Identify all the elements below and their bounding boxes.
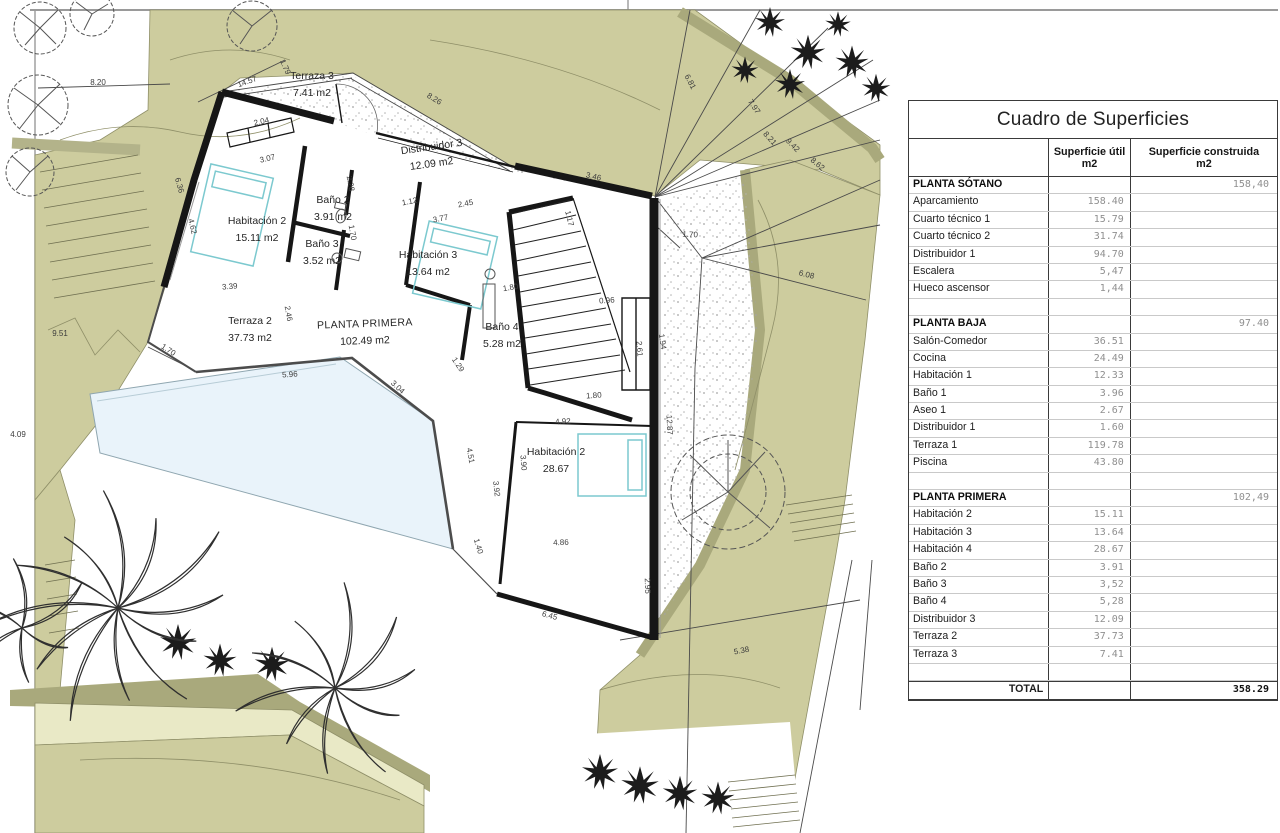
staircase <box>511 200 625 385</box>
table-cell: 3.91 <box>1048 560 1130 576</box>
dimension-label: 2.45 <box>457 198 475 210</box>
room-area-label: 7.41 m2 <box>293 87 331 99</box>
palm-frond <box>118 595 223 614</box>
table-row: Hueco ascensor1,44 <box>909 281 1277 298</box>
table-row: Baño 33,52 <box>909 577 1277 594</box>
table-row: Cocina24.49 <box>909 351 1277 368</box>
table-cell <box>1130 386 1277 402</box>
dimension-label: 1.40 <box>472 538 485 556</box>
table-cell: Terraza 1 <box>909 438 1048 454</box>
table-cell <box>1048 682 1130 698</box>
room-name-label: Terraza 2 <box>228 315 272 327</box>
room-name-label: Baño 2 <box>316 194 349 206</box>
table-row: Habitación 112.33 <box>909 368 1277 385</box>
room-area-label: 15.11 m2 <box>236 232 279 244</box>
table-cell: 5,47 <box>1048 264 1130 280</box>
palm-frond <box>335 617 397 688</box>
palm-frond <box>0 628 22 664</box>
table-cell: Aparcamiento <box>909 194 1048 210</box>
table-cell: Habitación 4 <box>909 542 1048 558</box>
table-cell: 2.67 <box>1048 403 1130 419</box>
room-area-label: 13.64 m2 <box>406 266 450 278</box>
room-name-label: PLANTA PRIMERA <box>317 316 413 331</box>
table-cell <box>909 473 1048 489</box>
dimension-label: 2.46 <box>283 305 295 322</box>
table-row: Aseo 12.67 <box>909 403 1277 420</box>
table-cell <box>1130 334 1277 350</box>
table-cell <box>1048 664 1130 680</box>
table-row: Terraza 237.73 <box>909 629 1277 646</box>
table-cell: Habitación 3 <box>909 525 1048 541</box>
table-cell <box>1130 542 1277 558</box>
table-cell: 158,40 <box>1130 177 1277 193</box>
table-cell: Baño 1 <box>909 386 1048 402</box>
table-cell <box>1048 490 1130 506</box>
room-name-label: Baño 3 <box>305 238 338 250</box>
table-cell <box>1130 438 1277 454</box>
table-cell <box>1130 229 1277 245</box>
table-cell <box>1130 629 1277 645</box>
table-cell <box>1130 594 1277 610</box>
table-cell: 13.64 <box>1048 525 1130 541</box>
table-cell: 1.60 <box>1048 420 1130 436</box>
table-cell: 5,28 <box>1048 594 1130 610</box>
room-area-label: 37.73 m2 <box>228 332 272 344</box>
table-cell: 94.70 <box>1048 247 1130 263</box>
palm-frond <box>118 532 219 608</box>
room-name-label: Habitación 2 <box>228 215 287 227</box>
room-name-label: Terraza 3 <box>290 70 334 82</box>
surface-table-body: PLANTA SÓTANO158,40Aparcamiento158.40Cua… <box>909 177 1277 700</box>
room-area-label: 28.67 <box>543 463 569 475</box>
table-cell: 15.79 <box>1048 212 1130 228</box>
table-row: Baño 13.96 <box>909 386 1277 403</box>
table-row <box>909 473 1277 490</box>
table-row: Baño 23.91 <box>909 560 1277 577</box>
table-row: TOTAL358.29 <box>909 681 1277 699</box>
table-cell: 36.51 <box>1048 334 1130 350</box>
dimension-label: 4.51 <box>465 447 477 465</box>
dimension-label: 2.95 <box>643 578 653 594</box>
table-cell <box>1130 420 1277 436</box>
table-row: Salón-Comedor36.51 <box>909 334 1277 351</box>
header-empty <box>909 139 1048 176</box>
table-cell: Baño 2 <box>909 560 1048 576</box>
table-row: Distribuidor 194.70 <box>909 247 1277 264</box>
table-row: Terraza 1119.78 <box>909 438 1277 455</box>
table-cell: Terraza 3 <box>909 647 1048 663</box>
table-cell: Hueco ascensor <box>909 281 1048 297</box>
table-row: Habitación 313.64 <box>909 525 1277 542</box>
table-cell: Baño 4 <box>909 594 1048 610</box>
surface-table-title: Cuadro de Superficies <box>909 101 1277 139</box>
room-area-label: 102.49 m2 <box>340 334 390 348</box>
table-cell: Escalera <box>909 264 1048 280</box>
dimension-label: 3.07 <box>259 152 277 164</box>
table-cell: 24.49 <box>1048 351 1130 367</box>
table-cell <box>1130 351 1277 367</box>
room-name-label: Habitación 2 <box>527 446 586 458</box>
table-cell <box>1048 177 1130 193</box>
table-row: Habitación 215.11 <box>909 507 1277 524</box>
dimension-label: 3.92 <box>491 481 502 498</box>
room-name-label: Habitación 3 <box>399 249 458 261</box>
table-row <box>909 299 1277 316</box>
dimension-label: 3.39 <box>222 281 239 291</box>
table-row: Escalera5,47 <box>909 264 1277 281</box>
room-name-label: Baño 4 <box>485 321 518 333</box>
table-cell: 158.40 <box>1048 194 1130 210</box>
table-cell: PLANTA BAJA <box>909 316 1048 332</box>
table-cell: Cuarto técnico 2 <box>909 229 1048 245</box>
surface-table-header: Superficie útil m2 Superficie construida… <box>909 139 1277 177</box>
floor-plan-sheet: 8.2014.571.798.266.817.978.219.428.626.0… <box>0 0 1280 833</box>
table-row: Habitación 428.67 <box>909 542 1277 559</box>
table-cell: Habitación 2 <box>909 507 1048 523</box>
dimension-label: 5.96 <box>282 369 299 379</box>
dimension-label: 4.86 <box>553 538 569 548</box>
table-cell: Piscina <box>909 455 1048 471</box>
header-superficie-util: Superficie útil m2 <box>1048 139 1130 176</box>
table-row: Aparcamiento158.40 <box>909 194 1277 211</box>
table-cell: Cocina <box>909 351 1048 367</box>
palm-frond <box>335 582 352 688</box>
table-cell: Distribuidor 3 <box>909 612 1048 628</box>
table-row: Distribuidor 11.60 <box>909 420 1277 437</box>
dimension-label: 1.17 <box>563 210 576 228</box>
table-row: Cuarto técnico 115.79 <box>909 212 1277 229</box>
table-cell: PLANTA SÓTANO <box>909 177 1048 193</box>
table-cell <box>1130 247 1277 263</box>
table-row: Terraza 37.41 <box>909 647 1277 664</box>
table-cell: 119.78 <box>1048 438 1130 454</box>
room-area-label: 3.91 m2 <box>314 211 352 223</box>
table-cell: PLANTA PRIMERA <box>909 490 1048 506</box>
table-cell: 43.80 <box>1048 455 1130 471</box>
table-cell: 1,44 <box>1048 281 1130 297</box>
table-cell <box>1130 368 1277 384</box>
dimension-label: 12.87 <box>664 415 674 436</box>
dimension-label: 2.61 <box>634 341 644 358</box>
dimension-label: 9.51 <box>52 329 68 338</box>
dimension-label: 0.96 <box>599 295 616 305</box>
table-cell: 15.11 <box>1048 507 1130 523</box>
table-cell <box>1048 299 1130 315</box>
table-cell: Aseo 1 <box>909 403 1048 419</box>
palm-frond <box>295 621 335 688</box>
room-area-label: 5.28 m2 <box>483 338 521 350</box>
table-cell <box>1130 507 1277 523</box>
table-cell: 358.29 <box>1130 682 1277 698</box>
table-cell <box>1130 212 1277 228</box>
table-cell <box>1130 473 1277 489</box>
table-cell <box>1130 560 1277 576</box>
table-cell: 3.96 <box>1048 386 1130 402</box>
dimension-label: 8.20 <box>90 78 106 87</box>
table-row <box>909 664 1277 681</box>
table-cell: 12.09 <box>1048 612 1130 628</box>
table-cell: 31.74 <box>1048 229 1130 245</box>
table-cell: TOTAL <box>909 682 1048 698</box>
table-cell: 102,49 <box>1130 490 1277 506</box>
table-cell <box>1130 664 1277 680</box>
table-row: PLANTA PRIMERA102,49 <box>909 490 1277 507</box>
table-cell <box>1130 299 1277 315</box>
table-cell: Baño 3 <box>909 577 1048 593</box>
table-row: Distribuidor 312.09 <box>909 612 1277 629</box>
surface-table: Cuadro de Superficies Superficie útil m2… <box>908 100 1278 701</box>
dimension-label: 4.92 <box>555 417 572 427</box>
palm-frond <box>20 628 29 683</box>
table-row: Cuarto técnico 231.74 <box>909 229 1277 246</box>
table-cell <box>909 664 1048 680</box>
table-cell <box>1130 525 1277 541</box>
table-cell: 28.67 <box>1048 542 1130 558</box>
table-cell: Distribuidor 1 <box>909 420 1048 436</box>
table-cell: Habitación 1 <box>909 368 1048 384</box>
dimension-label: 1.80 <box>586 390 603 400</box>
dimension-label: 4.62 <box>186 218 199 236</box>
table-cell <box>909 299 1048 315</box>
table-cell <box>1130 455 1277 471</box>
table-cell <box>1130 647 1277 663</box>
room-area-label: 12.09 m2 <box>409 155 454 173</box>
header-superficie-construida: Superficie construida m2 <box>1130 139 1277 176</box>
table-cell: 3,52 <box>1048 577 1130 593</box>
table-cell <box>1130 194 1277 210</box>
table-cell <box>1130 264 1277 280</box>
dimension-label: 4.09 <box>10 430 26 439</box>
dimension-label: 3.77 <box>432 213 450 225</box>
table-row: PLANTA SÓTANO158,40 <box>909 177 1277 194</box>
table-cell: Terraza 2 <box>909 629 1048 645</box>
table-cell <box>1048 473 1130 489</box>
table-row: Baño 45,28 <box>909 594 1277 611</box>
table-row: PLANTA BAJA97.40 <box>909 316 1277 333</box>
dimension-label: 1.94 <box>657 333 668 350</box>
table-cell: 7.41 <box>1048 647 1130 663</box>
table-cell: 97.40 <box>1130 316 1277 332</box>
dimension-label: 1.70 <box>682 230 699 240</box>
table-cell <box>1130 403 1277 419</box>
room-area-label: 3.52 m2 <box>303 255 341 267</box>
table-cell: Distribuidor 1 <box>909 247 1048 263</box>
table-row: Piscina43.80 <box>909 455 1277 472</box>
table-cell: Cuarto técnico 1 <box>909 212 1048 228</box>
palm-frond <box>335 688 399 716</box>
table-cell: Salón-Comedor <box>909 334 1048 350</box>
table-cell <box>1130 612 1277 628</box>
table-cell <box>1130 281 1277 297</box>
table-cell <box>1130 577 1277 593</box>
table-cell: 37.73 <box>1048 629 1130 645</box>
table-cell <box>1048 316 1130 332</box>
dimension-label: 1.70 <box>347 224 359 241</box>
table-cell: 12.33 <box>1048 368 1130 384</box>
dimension-label: 2.28 <box>345 175 357 192</box>
palm-frond <box>103 491 124 608</box>
palm-frond <box>13 559 26 628</box>
